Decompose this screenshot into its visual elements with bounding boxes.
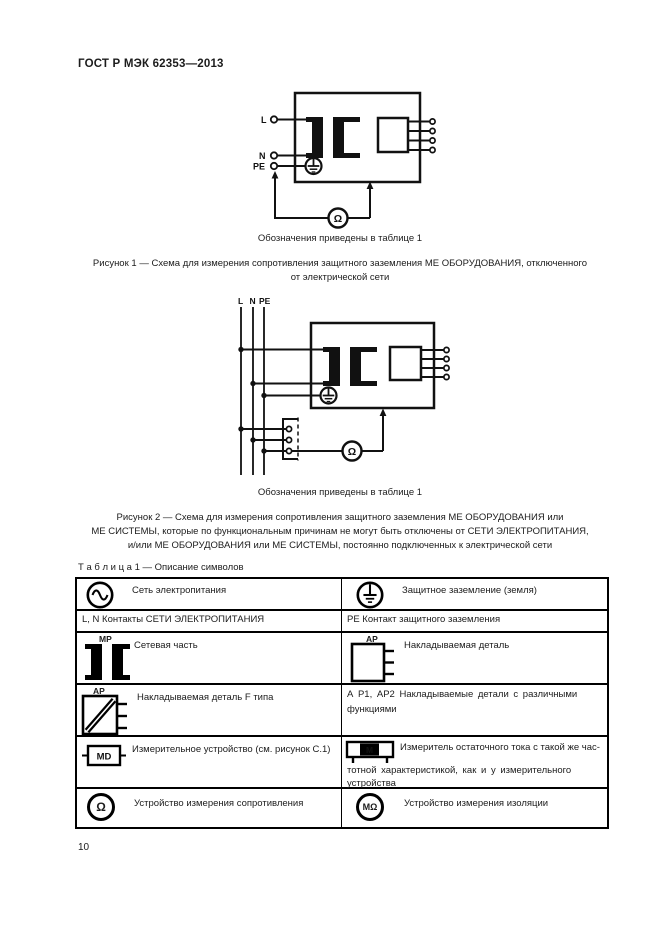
figure-1-caption: Рисунок 1 — Схема для измерения сопротив… xyxy=(75,257,605,285)
applied-part-f-icon xyxy=(81,694,131,738)
symbol-label: MD xyxy=(97,752,112,763)
symbol-description: устройства xyxy=(347,778,396,789)
mains-part-icon xyxy=(306,117,360,158)
terminal-label-l: L xyxy=(238,296,243,306)
protective-earth-icon xyxy=(355,580,385,610)
table-row: Ω Устройство измерения сопротивления МΩ … xyxy=(77,789,607,827)
supply-lines xyxy=(241,307,264,475)
mains-supply-icon xyxy=(85,580,115,610)
arrow-up-icon xyxy=(380,409,387,417)
table-row: MD Измерительное устройство (см. рисунок… xyxy=(77,737,607,789)
applied-part-leads xyxy=(421,350,444,377)
symbol-description: Сетевая часть xyxy=(134,640,198,651)
caption-line: и/или МЕ ОБОРУДОВАНИЯ или МЕ СИСТЕМЫ, по… xyxy=(75,539,605,553)
mains-part-icon xyxy=(323,347,377,386)
symbol-label: М xyxy=(366,745,373,755)
table-row: L, N Контакты СЕТИ ЭЛЕКТРОПИТАНИЯ PE Кон… xyxy=(77,611,607,633)
applied-part-icon xyxy=(390,347,421,380)
terminal-label-l: L xyxy=(261,115,267,125)
symbol-description: Сеть электропитания xyxy=(132,585,226,596)
residual-current-meter-icon: М xyxy=(344,740,398,766)
figure-1-note: Обозначения приведены в таблице 1 xyxy=(75,233,605,244)
symbol-description: функциями xyxy=(347,704,397,715)
caption-line: Рисунок 1 — Схема для измерения сопротив… xyxy=(75,257,605,271)
terminal-label-pe: PE xyxy=(253,162,265,172)
symbol-description: Накладываемая деталь F типа xyxy=(137,692,273,703)
table-row: МР Сетевая часть АР Накладываемая деталь xyxy=(77,633,607,685)
patient-connection-terminals xyxy=(430,119,435,153)
terminal-label-pe: PE xyxy=(259,296,271,306)
table-title: Т а б л и ц а 1 — Описание символов xyxy=(78,562,244,573)
caption-line: Рисунок 2 — Схема для измерения сопротив… xyxy=(75,511,605,525)
mains-part-icon xyxy=(83,642,133,684)
page-number: 10 xyxy=(78,842,89,853)
symbol-description: Измерительное устройство (см. рисунок С.… xyxy=(132,744,330,755)
caption-line: МЕ СИСТЕМЫ, которые по функциональным пр… xyxy=(75,525,605,539)
symbol-description: Устройство измерения сопротивления xyxy=(134,798,303,809)
symbol-description: Устройство измерения изоляции xyxy=(404,798,548,809)
insulation-meter-icon: МΩ xyxy=(356,793,384,821)
symbol-description: А Р1, АР2 Накладываемые детали с различн… xyxy=(347,689,577,700)
figure-2-diagram: L N PE Ω xyxy=(230,296,460,480)
symbol-description: Измеритель остаточного тока с такой же ч… xyxy=(400,742,600,753)
symbol-description: тотной характеристикой, как и у измерите… xyxy=(347,765,571,776)
table-row: Сеть электропитания Защитное заземление … xyxy=(77,579,607,611)
figure-2-caption: Рисунок 2 — Схема для измерения сопротив… xyxy=(75,511,605,553)
symbol-description: L, N Контакты СЕТИ ЭЛЕКТРОПИТАНИЯ xyxy=(82,614,264,625)
ohm-meter-label: Ω xyxy=(334,213,342,225)
terminal-label-n: N xyxy=(250,296,256,306)
applied-part-icon xyxy=(378,118,408,152)
symbol-description: Защитное заземление (земля) xyxy=(402,585,537,596)
caption-line: от электрической сети xyxy=(75,271,605,285)
protective-earth-icon xyxy=(321,388,337,404)
terminal-circles xyxy=(271,116,277,169)
document-title: ГОСТ Р МЭК 62353—2013 xyxy=(78,58,224,70)
symbols-table: Сеть электропитания Защитное заземление … xyxy=(75,577,609,829)
ohm-meter-label: Ω xyxy=(348,446,356,458)
applied-part-icon xyxy=(350,642,398,684)
connector-terminals xyxy=(286,426,291,453)
table-row: АР Накладываемая деталь F типа А Р1, АР2… xyxy=(77,685,607,737)
symbol-description: PE Контакт защитного заземления xyxy=(347,614,500,625)
figure-2-note: Обозначения приведены в таблице 1 xyxy=(75,487,605,498)
arrow-up-icons xyxy=(272,171,374,189)
terminal-label-n: N xyxy=(259,151,266,161)
symbol-description: Накладываемая деталь xyxy=(404,640,509,651)
resistance-meter-icon: Ω xyxy=(87,793,115,821)
patient-connection-terminals xyxy=(444,347,449,379)
protective-earth-icon xyxy=(306,158,322,174)
measuring-device-icon: MD xyxy=(81,743,129,769)
figure-1-diagram: L N PE Ω xyxy=(253,85,443,233)
